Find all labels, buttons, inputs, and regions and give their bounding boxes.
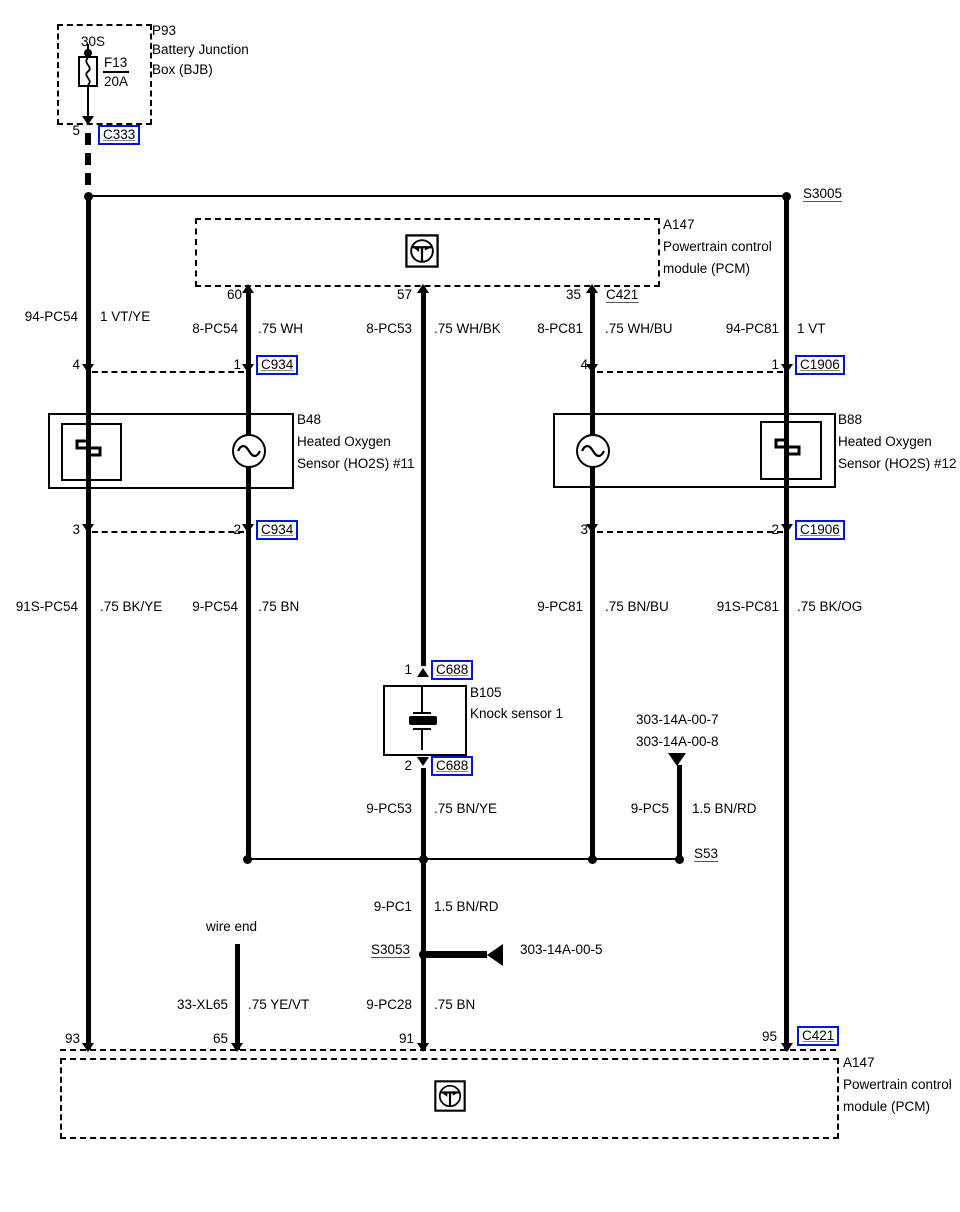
spec-label-75-bk-og: .75 BK/OG [797,598,862,615]
reference-label-303-14a-00-7: 303-14A-00-7 [636,711,719,728]
wire-end-label: wire end [206,918,257,935]
connector-arrow [781,364,793,373]
pcm-pin95-label: 95 [762,1028,777,1045]
knock-element-plate-top [413,712,431,714]
fuse-body [78,56,98,87]
circuit-label-8-pc81: 8-PC81 [537,320,583,337]
bjb-bus-label: 30S [81,33,105,50]
circuit-label-91s-pc81: 91S-PC81 [717,598,779,615]
connector-arrow-pin60 [242,284,254,293]
spec-label-75-bn-bu: .75 BN/BU [605,598,669,615]
circuit-label-9-pc1: 9-PC1 [374,898,412,915]
spec-label-15-bn-rd-2: 1.5 BN/RD [434,898,499,915]
spec-label-75-bn-c: .75 BN [434,996,475,1013]
bjb-name-line1: Battery Junction [152,41,249,58]
wiring-diagram: 30S F13 20A P93 Battery Junction Box (BJ… [0,0,960,1212]
reference-label-303-14a-00-5: 303-14A-00-5 [520,941,603,958]
connector-line-pcm-bottom [60,1049,836,1051]
connector-line-c1906-bottom [597,531,783,533]
spec-label-75-ye-vt: .75 YE/VT [248,996,309,1013]
knock-pin1-label: 1 [404,661,412,678]
heater-element-icon [769,427,806,472]
connector-arrow [781,1043,793,1052]
knock-piezo-element-icon [409,716,437,725]
pcm-bottom-name-line1: Powertrain control [843,1076,952,1093]
wire-a-vertical [86,197,91,1050]
heater-element-icon [70,428,107,473]
wire-b-vertical [246,288,251,860]
wire-c-lower [421,768,426,1050]
pcm-pin65-label: 65 [213,1030,228,1047]
pcm-bottom-name-line2: module (PCM) [843,1098,930,1115]
connector-label-c421-top[interactable]: C421 [606,286,638,303]
ho2s11-id-label: B48 [297,411,321,428]
splice-label-s3005[interactable]: S3005 [803,185,842,202]
offpage-arrow-knock-icon [668,753,686,766]
knock-element-lead-top [421,687,423,714]
ho2s12-pin4-label: 4 [580,356,588,373]
connector-link-c333[interactable]: C333 [98,125,140,145]
spec-label-75-bn-b: .75 BN [258,598,299,615]
ho2s12-sensor-cell-icon [576,434,610,468]
ho2s12-pin3-label: 3 [580,521,588,538]
circuit-label-33-xl65: 33-XL65 [177,996,228,1013]
knock-element-lead-bottom [421,728,423,750]
ho2s11-pin2-label: 2 [233,521,241,538]
wire-top-horizontal [88,195,787,197]
wire-ground-bar [425,951,487,958]
connector-arrow-pin5 [82,116,94,125]
spec-label-75-bk-ye: .75 BK/YE [100,598,162,615]
connector-arrow [242,364,254,373]
pcm-top-id-label: A147 [663,216,695,233]
connector-arrow [417,1043,429,1052]
pcm-bottom-id-label: A147 [843,1054,875,1071]
pcm-pin60-label: 60 [227,286,242,303]
pcm-top-name-line2: module (PCM) [663,260,750,277]
pcm-pin57-label: 57 [397,286,412,303]
pcm-pin91-label: 91 [399,1030,414,1047]
circuit-label-8-pc54: 8-PC54 [192,320,238,337]
bjb-name-line2: Box (BJB) [152,61,213,78]
connector-link-c934-top[interactable]: C934 [256,355,298,375]
connector-link-c1906-bottom[interactable]: C1906 [795,520,845,540]
ho2s11-name-line1: Heated Oxygen [297,433,391,450]
ho2s11-pin4-label: 4 [72,356,80,373]
pcm-pin35-label: 35 [566,286,581,303]
spec-label-75-wh: .75 WH [258,320,303,337]
connector-arrow [82,524,94,533]
junction-dot-s3005 [782,192,791,201]
circuit-label-8-pc53: 8-PC53 [366,320,412,337]
ho2s11-sensor-cell-icon [232,434,266,468]
wire-splice-bus [246,858,682,860]
connector-arrow [231,1043,243,1052]
ho2s12-name-line2: Sensor (HO2S) #12 [838,455,957,472]
junction-dot-s3053 [419,950,428,959]
pcm-pin93-label: 93 [65,1030,80,1047]
connector-link-c421-bottom[interactable]: C421 [797,1026,839,1046]
pcm-top-name-line1: Powertrain control [663,238,772,255]
connector-arrow-pin35 [586,284,598,293]
bus-dot-c [419,855,428,864]
knock-pin2-label: 2 [404,757,412,774]
connector-line-c934-top [92,371,244,373]
circuit-label-9-pc28: 9-PC28 [366,996,412,1013]
bjb-pin5-label: 5 [72,122,80,139]
fuse-element-icon [80,58,96,85]
circuit-label-91s-pc54: 91S-PC54 [16,598,78,615]
wire-knock-ref-stub [677,765,682,860]
circuit-label-9-pc54: 9-PC54 [192,598,238,615]
connector-arrow [82,1043,94,1052]
reference-label-303-14a-00-8: 303-14A-00-8 [636,733,719,750]
knock-name-label: Knock sensor 1 [470,705,563,722]
splice-label-s53[interactable]: S53 [694,845,718,862]
ho2s12-pin2-label: 2 [771,521,779,538]
connector-line-c1906-top [597,371,783,373]
ho2s11-pin1-label: 1 [233,356,241,373]
knock-id-label: B105 [470,684,502,701]
circuit-label-94-pc54: 94-PC54 [25,308,78,325]
circuit-label-94-pc81: 94-PC81 [726,320,779,337]
wire-e-vertical [784,197,789,1050]
wire-end-stub [235,944,240,1050]
ho2s11-name-line2: Sensor (HO2S) #11 [297,455,415,472]
fuse-rating-label: 20A [104,73,128,90]
splice-label-s3053[interactable]: S3053 [371,941,410,958]
connector-link-c688-bottom[interactable]: C688 [431,756,473,776]
spec-label-15-bn-rd: 1.5 BN/RD [692,800,757,817]
junction-dot-left [84,192,93,201]
spec-label-1-vt-ye: 1 VT/YE [100,308,150,325]
bus-dot-b [243,855,252,864]
connector-arrow-pin57 [417,284,429,293]
pcm-module-icon [405,234,439,268]
spec-label-75-bn-ye: .75 BN/YE [434,800,497,817]
circuit-label-9-pc53: 9-PC53 [366,800,412,817]
circuit-label-9-pc81: 9-PC81 [537,598,583,615]
connector-line-c934-bottom [92,531,244,533]
ho2s12-id-label: B88 [838,411,862,428]
wire-a-dashed-segment [85,133,91,195]
bus-dot-s53 [675,855,684,864]
ho2s11-pin3-label: 3 [72,521,80,538]
fuse-name-label: F13 [104,54,127,71]
wire-d-vertical [590,288,595,860]
connector-link-c934-bottom[interactable]: C934 [256,520,298,540]
connector-arrow [242,524,254,533]
spec-label-1-vt: 1 VT [797,320,826,337]
spec-label-75-wh-bu: .75 WH/BU [605,320,673,337]
connector-arrow [82,364,94,373]
connector-link-c1906-top[interactable]: C1906 [795,355,845,375]
ho2s12-pin1-label: 1 [771,356,779,373]
offpage-arrow-ground-icon [487,944,503,966]
connector-arrow [781,524,793,533]
connector-link-c688-top[interactable]: C688 [431,660,473,680]
spec-label-75-wh-bk: .75 WH/BK [434,320,501,337]
bjb-id-label: P93 [152,22,176,39]
wire-c-upper [421,288,426,666]
circuit-label-9-pc5: 9-PC5 [631,800,669,817]
pcm-module-icon [434,1080,466,1112]
ho2s12-name-line1: Heated Oxygen [838,433,932,450]
connector-arrow-c688-pin2 [417,757,429,766]
bus-dot-d [588,855,597,864]
connector-arrow-c688-pin1 [417,668,429,677]
